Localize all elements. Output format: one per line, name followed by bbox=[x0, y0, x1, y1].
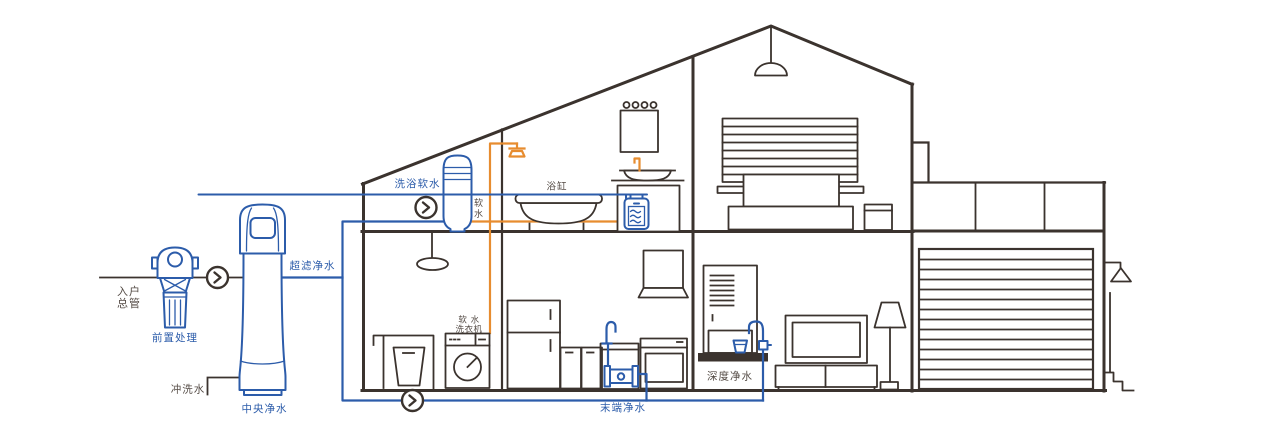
pre-filter-device bbox=[152, 248, 198, 328]
dispenser-bench bbox=[698, 353, 768, 362]
label-deep-purifier: 深度净水 bbox=[707, 370, 753, 383]
tv bbox=[786, 316, 868, 364]
outdoor-wall-lamp-icon bbox=[1104, 263, 1131, 282]
shower-head-icon bbox=[510, 144, 525, 157]
nightstand bbox=[865, 205, 893, 231]
label-inlet-line2: 总管 bbox=[117, 296, 141, 310]
washing-machine bbox=[446, 334, 490, 389]
label-ultrafiltration: 超滤净水 bbox=[290, 259, 336, 272]
bedroom bbox=[718, 27, 893, 230]
water-cup-icon bbox=[734, 341, 748, 353]
label-pre-treatment: 前置处理 bbox=[152, 331, 198, 344]
kitchen-faucet-icon bbox=[603, 322, 616, 344]
flow-direction-icon bbox=[402, 390, 423, 411]
kitchen-cabinet bbox=[561, 348, 603, 389]
tv-stand bbox=[776, 366, 878, 391]
kitchen bbox=[508, 251, 689, 390]
label-bathtub: 浴缸 bbox=[546, 181, 567, 193]
label-terminal-purifier: 末端净水 bbox=[600, 401, 646, 414]
mirror bbox=[621, 111, 659, 153]
vent-grille bbox=[711, 276, 734, 306]
pendant-lamp-icon bbox=[755, 27, 787, 76]
headboard bbox=[744, 175, 840, 207]
floor-lamp-icon bbox=[875, 303, 906, 390]
refrigerator bbox=[508, 301, 561, 389]
parapet-notch bbox=[912, 143, 929, 183]
flow-direction-icon bbox=[207, 267, 228, 288]
pendant-lamp-icon bbox=[417, 233, 448, 270]
vanity-sink-bowl bbox=[624, 171, 671, 181]
range-hood bbox=[639, 251, 689, 298]
diagram-canvas: 入户 总管 前置处理 中央净水 冲洗水 超滤净水 洗浴软水 软 水 浴缸 软 水… bbox=[0, 0, 1280, 434]
bathtub bbox=[516, 195, 603, 231]
window-blind bbox=[723, 119, 858, 183]
house-water-system-diagram: 入户 总管 前置处理 中央净水 冲洗水 超滤净水 洗浴软水 软 水 浴缸 软 水… bbox=[0, 0, 1280, 434]
laundry-room bbox=[374, 233, 490, 389]
central-purifier-device bbox=[240, 205, 286, 396]
label-bath-softener: 洗浴软水 bbox=[395, 177, 441, 190]
utility-basin bbox=[374, 336, 434, 389]
dispenser-valve-icon bbox=[759, 341, 771, 350]
vanity-faucet-icon bbox=[635, 159, 640, 171]
label-inlet-line1: 入户 bbox=[117, 284, 141, 298]
bed-base bbox=[729, 207, 854, 230]
label-central-purifier: 中央净水 bbox=[242, 402, 288, 415]
label-soft-water-v1: 软 bbox=[474, 197, 483, 209]
flow-direction-icon bbox=[416, 197, 437, 218]
label-washer-line1: 软 水 bbox=[458, 315, 479, 326]
garage-structure bbox=[912, 143, 1134, 392]
entry-steps bbox=[1104, 373, 1134, 391]
dispenser-cabinet bbox=[704, 266, 758, 354]
mirror-lights-icon bbox=[624, 102, 657, 108]
label-soft-water-v2: 水 bbox=[474, 208, 483, 220]
bed bbox=[729, 175, 854, 230]
garage-door-slats bbox=[919, 260, 1093, 380]
living-room bbox=[776, 303, 906, 391]
flush-water-pipe bbox=[208, 378, 242, 395]
label-flush-water: 冲洗水 bbox=[171, 383, 206, 396]
label-washer-line2: 洗衣机 bbox=[455, 324, 482, 335]
bathroom bbox=[516, 102, 684, 232]
